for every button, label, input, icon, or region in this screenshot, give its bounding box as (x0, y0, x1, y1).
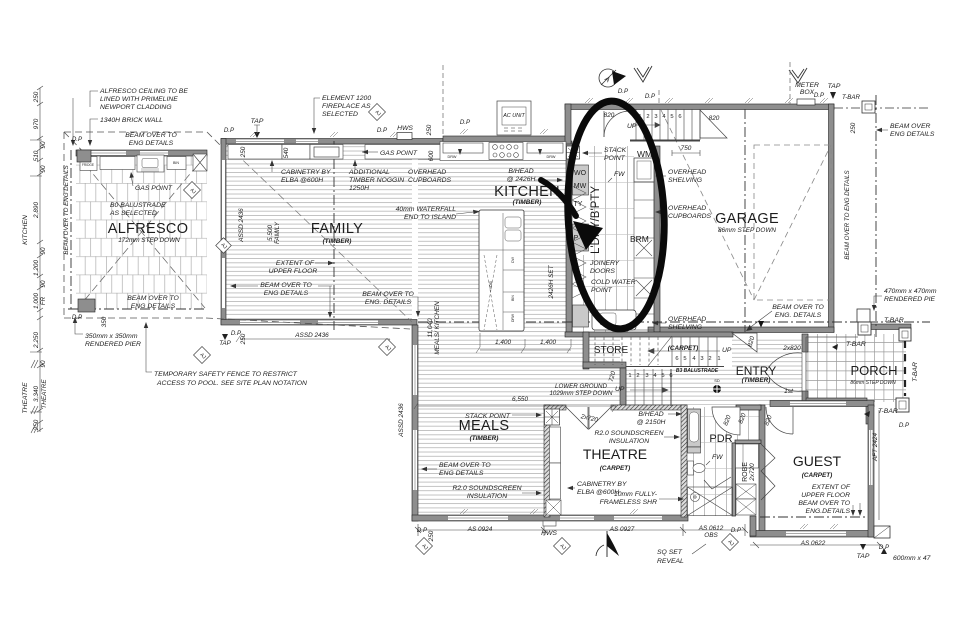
svg-text:GAS POINT: GAS POINT (380, 150, 418, 157)
svg-text:UPPER FLOOR: UPPER FLOOR (801, 492, 850, 499)
svg-text:BOX: BOX (800, 89, 815, 96)
svg-text:METER: METER (795, 82, 819, 89)
svg-text:WO: WO (574, 170, 587, 177)
svg-text:ADDITIONAL: ADDITIONAL (348, 169, 390, 176)
svg-text:BEAM OVER TO: BEAM OVER TO (125, 132, 177, 139)
svg-text:AFT 2424: AFT 2424 (872, 433, 879, 463)
svg-text:2x720: 2x720 (749, 463, 756, 482)
svg-text:90: 90 (40, 247, 47, 255)
svg-text:UP: UP (627, 123, 637, 130)
svg-text:540: 540 (283, 147, 290, 158)
svg-text:ENG DETAILS: ENG DETAILS (131, 303, 176, 310)
svg-text:FR: FR (40, 296, 47, 305)
svg-text:1250H: 1250H (349, 185, 369, 192)
svg-text:GUEST: GUEST (793, 453, 842, 469)
svg-text:R2.0 SOUNDSCREEN: R2.0 SOUNDSCREEN (452, 485, 521, 492)
svg-text:CABINETRY BY: CABINETRY BY (281, 169, 331, 176)
svg-text:FRIDGE: FRIDGE (82, 163, 94, 167)
svg-text:5: 5 (683, 356, 686, 362)
svg-text:POINT: POINT (604, 155, 626, 162)
svg-text:LINED WITH PRIMELINE: LINED WITH PRIMELINE (100, 96, 178, 103)
svg-text:AS 0924: AS 0924 (467, 526, 493, 533)
svg-text:90: 90 (40, 280, 47, 288)
svg-text:FW: FW (712, 454, 723, 461)
svg-text:1340H BRICK WALL: 1340H BRICK WALL (100, 117, 163, 124)
svg-text:350mm x 350mm: 350mm x 350mm (85, 333, 138, 340)
svg-text:DRW: DRW (511, 313, 515, 322)
svg-text:INSULATION: INSULATION (609, 438, 649, 445)
svg-text:1: 1 (628, 373, 631, 379)
svg-text:D.P: D.P (224, 127, 235, 134)
svg-text:90: 90 (40, 141, 47, 149)
svg-text:250: 250 (426, 124, 433, 136)
svg-text:ALFRESCO: ALFRESCO (108, 221, 189, 237)
svg-text:FIREPLACE AS: FIREPLACE AS (322, 103, 371, 110)
svg-text:AS SELECTED: AS SELECTED (109, 210, 157, 217)
svg-text:90: 90 (40, 360, 47, 368)
svg-text:L'DRY/B'PTY: L'DRY/B'PTY (590, 186, 602, 254)
svg-text:DOORS: DOORS (590, 268, 615, 275)
svg-text:B3 BALUSTRADE: B3 BALUSTRADE (676, 368, 719, 374)
svg-text:D.P: D.P (618, 88, 629, 95)
svg-text:BIN: BIN (511, 295, 515, 301)
svg-text:90: 90 (40, 165, 47, 173)
svg-text:2426H SET: 2426H SET (548, 264, 555, 299)
svg-text:HWS: HWS (397, 125, 413, 132)
svg-text:T-BAR: T-BAR (842, 94, 861, 101)
svg-text:TAP: TAP (828, 83, 841, 90)
svg-text:ENTRY: ENTRY (736, 364, 776, 378)
svg-text:ENG DETAILS: ENG DETAILS (890, 131, 935, 138)
svg-text:BEAM OVER TO: BEAM OVER TO (772, 304, 824, 311)
svg-text:FAMILY: FAMILY (274, 221, 281, 244)
svg-text:CUPBOARDS: CUPBOARDS (668, 213, 712, 220)
svg-text:EXTENT OF: EXTENT OF (276, 260, 315, 267)
svg-text:1st: 1st (784, 388, 794, 395)
svg-text:ASSD 2436: ASSD 2436 (238, 208, 245, 243)
svg-text:SQ SET: SQ SET (657, 549, 683, 556)
svg-text:10mm FULLY-: 10mm FULLY- (614, 491, 658, 498)
svg-text:ENG. DETAILS: ENG. DETAILS (775, 312, 822, 319)
svg-text:D.P: D.P (72, 314, 83, 321)
svg-text:6,550: 6,550 (512, 396, 528, 403)
svg-text:ENG DETAILS: ENG DETAILS (129, 140, 174, 147)
svg-text:MEALS: MEALS (459, 418, 510, 434)
svg-text:BEAM OVER TO ENG DETAILS: BEAM OVER TO ENG DETAILS (844, 170, 851, 260)
svg-text:ENG DETAILS: ENG DETAILS (264, 290, 309, 297)
svg-text:1,400: 1,400 (540, 339, 556, 346)
svg-text:AC UNIT: AC UNIT (502, 113, 525, 119)
svg-text:BEAM OVER TO: BEAM OVER TO (362, 291, 414, 298)
svg-text:5: 5 (670, 114, 673, 120)
svg-text:6: 6 (669, 373, 672, 379)
svg-text:R2.0 SOUNDSCREEN: R2.0 SOUNDSCREEN (594, 430, 663, 437)
svg-text:RENDERED PIER: RENDERED PIER (85, 341, 141, 348)
svg-text:THEATRE: THEATRE (41, 379, 48, 409)
svg-text:D.P: D.P (899, 422, 910, 429)
svg-text:P: P (574, 235, 579, 242)
svg-text:OVERHEAD: OVERHEAD (668, 316, 706, 323)
svg-text:FRAMELESS SHR: FRAMELESS SHR (600, 499, 657, 506)
svg-text:350: 350 (101, 316, 108, 327)
svg-text:TAP: TAP (857, 553, 870, 560)
svg-text:FAMILY: FAMILY (311, 221, 363, 237)
svg-text:250: 250 (428, 530, 435, 542)
svg-text:TIMBER NOGGIN: TIMBER NOGGIN (349, 177, 404, 184)
svg-text:11,040: 11,040 (427, 318, 434, 338)
svg-text:ENG. DETAILS: ENG. DETAILS (365, 299, 412, 306)
svg-text:UP: UP (722, 347, 732, 354)
svg-text:UP: UP (615, 386, 625, 393)
svg-text:40mm WATERFALL: 40mm WATERFALL (396, 206, 457, 213)
svg-text:GAS POINT: GAS POINT (135, 185, 173, 192)
svg-text:SELECTED: SELECTED (322, 111, 358, 118)
svg-text:INSULATION: INSULATION (467, 493, 507, 500)
svg-text:END TO ISLAND: END TO ISLAND (404, 214, 456, 221)
svg-text:REVEAL: REVEAL (657, 558, 684, 565)
svg-text:TEMPORARY SAFETY FENCE TO REST: TEMPORARY SAFETY FENCE TO RESTRICT (154, 371, 298, 378)
svg-text:1029mm STEP DOWN: 1029mm STEP DOWN (549, 390, 613, 397)
svg-text:2: 2 (708, 356, 711, 362)
svg-text:MW: MW (574, 183, 587, 190)
svg-text:BIN: BIN (173, 161, 179, 165)
svg-text:HWS: HWS (541, 530, 557, 537)
svg-text:TAP: TAP (251, 118, 264, 125)
svg-text:(CARPET): (CARPET) (668, 345, 699, 352)
svg-text:ELBA @600H: ELBA @600H (281, 177, 323, 184)
svg-text:250: 250 (240, 146, 247, 158)
svg-text:SHELVING: SHELVING (668, 177, 702, 184)
svg-text:STORE: STORE (594, 345, 629, 356)
svg-text:RENDERED PIE: RENDERED PIE (884, 296, 935, 303)
svg-text:86mm STEP DOWN: 86mm STEP DOWN (718, 227, 776, 234)
svg-text:SD: SD (714, 378, 720, 383)
svg-text:ENG.DETAILS: ENG.DETAILS (806, 508, 851, 515)
svg-text:3: 3 (654, 114, 657, 120)
svg-text:ELEMENT 1200: ELEMENT 1200 (322, 95, 371, 102)
svg-text:250: 250 (240, 333, 247, 345)
svg-text:(TIMBER): (TIMBER) (323, 238, 352, 245)
svg-text:750: 750 (681, 145, 692, 152)
svg-text:AS 0927: AS 0927 (609, 526, 635, 533)
svg-text:(CARPET): (CARPET) (802, 472, 833, 479)
svg-text:@ 2150H: @ 2150H (637, 419, 666, 426)
svg-text:DRW: DRW (448, 155, 457, 159)
svg-text:1,400: 1,400 (495, 339, 511, 346)
svg-text:UPPER FLOOR: UPPER FLOOR (269, 268, 318, 275)
svg-text:AS 0622: AS 0622 (800, 540, 826, 547)
svg-text:MEALS/ KITCHEN: MEALS/ KITCHEN (434, 301, 441, 355)
svg-text:2,890: 2,890 (33, 202, 40, 219)
svg-text:D.P: D.P (417, 527, 428, 534)
svg-text:BEAM OVER TO: BEAM OVER TO (260, 282, 312, 289)
svg-text:T-BAR: T-BAR (884, 317, 904, 324)
svg-text:D.P: D.P (814, 92, 825, 99)
svg-text:STACK POINT: STACK POINT (465, 413, 511, 420)
svg-text:ALFRESCO CEILING TO BE: ALFRESCO CEILING TO BE (99, 88, 188, 95)
svg-text:D.P: D.P (72, 136, 83, 143)
svg-text:250: 250 (33, 419, 40, 431)
svg-text:CUPBOARDS: CUPBOARDS (408, 177, 452, 184)
svg-text:820: 820 (709, 115, 720, 122)
svg-text:CABINETRY BY: CABINETRY BY (577, 481, 627, 488)
svg-text:BEAM OVER TO ENG DETAILS: BEAM OVER TO ENG DETAILS (63, 165, 70, 255)
svg-text:B/HEAD: B/HEAD (508, 168, 533, 175)
svg-text:(TIMBER): (TIMBER) (513, 199, 542, 206)
svg-text:PDR: PDR (709, 433, 732, 445)
svg-text:TY: TY (574, 201, 583, 208)
svg-text:1,200: 1,200 (33, 260, 40, 276)
svg-text:BEAM OVER TO: BEAM OVER TO (127, 295, 179, 302)
svg-text:BEAM OVER TO: BEAM OVER TO (798, 500, 850, 507)
svg-text:BRM: BRM (630, 234, 649, 244)
svg-text:ROBE: ROBE (742, 462, 749, 482)
svg-text:820: 820 (604, 112, 615, 119)
svg-text:T-BAR: T-BAR (912, 362, 919, 382)
svg-text:250: 250 (33, 91, 40, 103)
svg-text:ASSD 2436: ASSD 2436 (294, 332, 329, 339)
svg-text:1: 1 (717, 356, 720, 362)
svg-text:STACK: STACK (604, 147, 627, 154)
svg-text:JOINERY: JOINERY (589, 260, 620, 267)
svg-text:172mm STEP DOWN: 172mm STEP DOWN (118, 237, 180, 244)
svg-text:ASSD 2436: ASSD 2436 (398, 403, 405, 438)
svg-text:600mm x 47: 600mm x 47 (893, 555, 931, 562)
svg-text:3: 3 (645, 373, 648, 379)
svg-text:2: 2 (646, 114, 649, 120)
svg-text:6: 6 (678, 114, 681, 120)
svg-text:6: 6 (675, 356, 678, 362)
svg-text:3: 3 (700, 356, 703, 362)
svg-text:SHELVING: SHELVING (668, 324, 702, 331)
svg-text:LOWER GROUND: LOWER GROUND (555, 383, 607, 390)
svg-text:ELBA @600H: ELBA @600H (577, 489, 619, 496)
svg-text:D.P: D.P (645, 93, 656, 100)
svg-text:VOID: VOID (489, 280, 493, 289)
svg-text:5: 5 (661, 373, 664, 379)
svg-text:NEWPORT CLADDING: NEWPORT CLADDING (100, 104, 172, 111)
svg-text:600: 600 (428, 150, 435, 161)
svg-text:2x820: 2x820 (782, 345, 801, 352)
svg-text:(CARPET): (CARPET) (600, 465, 631, 472)
svg-text:1,000: 1,000 (33, 293, 40, 309)
svg-text:DW: DW (511, 256, 515, 262)
svg-text:COLD WATER: COLD WATER (591, 279, 636, 286)
svg-text:OVERHEAD: OVERHEAD (668, 169, 706, 176)
svg-text:5,500: 5,500 (267, 225, 274, 241)
svg-text:GARAGE: GARAGE (715, 211, 779, 227)
svg-text:T-BAR: T-BAR (878, 408, 898, 415)
svg-text:970: 970 (33, 118, 40, 129)
svg-text:EXTENT OF: EXTENT OF (812, 484, 851, 491)
svg-text:FW: FW (614, 171, 625, 178)
svg-text:T-BAR: T-BAR (846, 341, 866, 348)
svg-text:@ 2426H: @ 2426H (507, 176, 536, 183)
svg-text:AS 0612: AS 0612 (698, 525, 724, 532)
svg-text:OVERHEAD: OVERHEAD (408, 169, 446, 176)
svg-text:250: 250 (850, 122, 857, 134)
svg-text:OVERHEAD: OVERHEAD (668, 205, 706, 212)
svg-text:ENG DETAILS: ENG DETAILS (439, 470, 484, 477)
svg-text:D.P: D.P (377, 127, 388, 134)
svg-text:POINT: POINT (591, 287, 613, 294)
svg-text:BEAM OVER: BEAM OVER (890, 123, 931, 130)
svg-text:THEATRE: THEATRE (583, 446, 647, 462)
svg-text:D.P: D.P (460, 119, 471, 126)
svg-text:THEATRE: THEATRE (22, 382, 29, 414)
svg-text:DRW: DRW (547, 155, 556, 159)
svg-text:2: 2 (636, 373, 639, 379)
svg-text:D.P: D.P (731, 527, 742, 534)
svg-text:PORCH: PORCH (851, 363, 898, 378)
svg-text:B0 BALUSTRADE: B0 BALUSTRADE (110, 202, 166, 209)
svg-text:470mm x 470mm: 470mm x 470mm (884, 288, 937, 295)
svg-text:B/HEAD: B/HEAD (638, 411, 663, 418)
svg-text:510: 510 (33, 150, 40, 161)
svg-text:(TIMBER): (TIMBER) (742, 377, 771, 384)
svg-text:ACCESS TO POOL. SEE SITE PLAN: ACCESS TO POOL. SEE SITE PLAN NOTATION (156, 380, 307, 387)
svg-text:BEAM OVER TO: BEAM OVER TO (439, 462, 491, 469)
svg-text:TAP: TAP (219, 340, 231, 347)
svg-text:OBS: OBS (704, 532, 718, 539)
svg-text:2,250: 2,250 (33, 332, 40, 349)
svg-text:(TIMBER): (TIMBER) (470, 435, 499, 442)
svg-text:KITCHEN: KITCHEN (22, 215, 29, 245)
svg-text:3,340: 3,340 (33, 386, 40, 402)
svg-text:86mm STEP DOWN: 86mm STEP DOWN (850, 380, 896, 386)
